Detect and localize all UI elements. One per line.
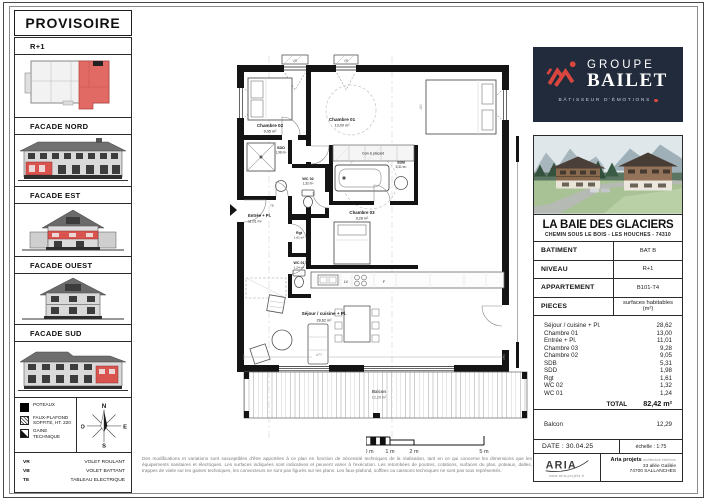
surface-value: 1,24 <box>660 390 672 398</box>
abbrev-code: VB <box>23 467 30 476</box>
legend-label: GAINE TECHNIQUE <box>33 428 74 438</box>
surface-value: 9,05 <box>660 352 672 360</box>
surface-value: 1,61 <box>660 375 672 383</box>
facade-sud-label: FACADE SUD <box>15 325 131 342</box>
brand-name-text: BAILET <box>587 71 668 90</box>
surface-label: Chambre 02 <box>544 352 578 360</box>
status-title: PROVISOIRE <box>14 10 132 36</box>
poteaux-symbol-icon <box>20 403 29 412</box>
surface-value: 5,31 <box>660 360 672 368</box>
entrance-marker-icon <box>230 204 237 216</box>
legend-label: POTEAUX <box>33 402 55 407</box>
legend-item-gaine: GAINE TECHNIQUE <box>20 428 74 438</box>
bed-chambre01-icon <box>426 80 496 134</box>
surface-label: SDB <box>544 360 557 368</box>
aria-logo-icon: ARIA <box>541 457 593 473</box>
wc02-toilet-icon <box>302 190 314 208</box>
key-plan-drawing <box>23 57 123 115</box>
agency-name: Aria projets <box>611 457 642 463</box>
surface-label: Entrée + Pl. <box>544 337 577 345</box>
room-area-chambre01: 13,00 m² <box>335 124 351 128</box>
surface-label: WC 02 <box>544 382 563 390</box>
scale-tick-2: 2 m <box>409 449 419 455</box>
balcony-label: Balcon <box>544 421 563 428</box>
surface-row: Entrée + Pl.11,01 <box>544 337 672 345</box>
abbrev-label: TABLEAU ELECTRIQUE <box>70 476 125 485</box>
compass: N S E O <box>77 398 131 452</box>
info-row-pieces: PIECES surfaces habitables (m²) <box>534 298 682 317</box>
abbrev-label: VOLET ROULANT <box>84 458 125 467</box>
armchair-icon <box>267 295 286 314</box>
facade-sud-unit-highlight <box>96 366 118 383</box>
project-address: CHEMIN SOUS LE BOIS - LES HOUCHES - 7431… <box>545 232 671 238</box>
kitchen-counter <box>311 272 504 288</box>
facade-ouest-label: FACADE OUEST <box>15 257 131 274</box>
room-area-wc02: 1,32 m² <box>303 182 314 186</box>
room-area-sdb: 5,31 m² <box>396 165 407 169</box>
surface-row: WC 021,32 <box>544 382 672 390</box>
surface-label: Séjour / cuisine + Pl. <box>544 322 601 330</box>
abbrev-label: VOLET BATTANT <box>86 467 125 476</box>
info-value: B101-T4 <box>614 279 682 297</box>
floor-plan: Chambre 02 9,05 m² Chambre 01 13,00 m² S… <box>224 50 536 442</box>
scale-tick-1: 1 m <box>385 449 395 455</box>
legend-symbols: POTEAUX FAUX-PLAFOND SOFFITE, HT. 220 GA… <box>15 398 77 452</box>
surface-row: SDB5,31 <box>544 360 672 368</box>
brand-tagline-text: BÂTISSEUR D'ÉMOTIONS <box>559 98 652 103</box>
dim-bed: 160 <box>419 104 423 110</box>
sofa-icon <box>308 324 328 364</box>
facade-nord-label: FACADE NORD <box>15 118 131 135</box>
legend: POTEAUX FAUX-PLAFOND SOFFITE, HT. 220 GA… <box>15 398 131 453</box>
agency-info-cell: Aria projets architecture intérieure 33 … <box>601 454 682 481</box>
legend-item-faux-plafond: FAUX-PLAFOND SOFFITE, HT. 220 <box>20 415 74 425</box>
room-label-rgt: Rgt <box>296 231 303 235</box>
surface-row: Rgt1,61 <box>544 375 672 383</box>
surface-label: Chambre 03 <box>544 345 578 353</box>
room-label-chambre03: Chambre 03 <box>349 210 375 215</box>
room-label-chambre02: Chambre 02 <box>257 123 284 128</box>
info-row-appartement: APPARTEMENT B101-T4 <box>534 279 682 298</box>
room-label-sdd: SDD <box>277 146 285 150</box>
abbrev-te: TE TABLEAU ELECTRIQUE <box>23 476 125 485</box>
legend-label: FAUX-PLAFOND SOFFITE, HT. 220 <box>33 415 74 425</box>
surface-label: Rgt <box>544 375 554 383</box>
room-area-rgt: 1,61 m² <box>294 236 304 240</box>
facade-nord-drawing <box>18 137 128 185</box>
facade-ouest-elevation <box>15 274 131 325</box>
room-area-wc01: 1,24 m² <box>294 266 304 270</box>
project-rendering <box>533 135 683 215</box>
room-area-chambre02: 9,05 m² <box>264 130 278 134</box>
abbrev-code: TE <box>23 476 29 485</box>
room-label-wc02: WC 02 <box>302 177 314 181</box>
surface-row: Séjour / cuisine + Pl.28,62 <box>544 322 672 330</box>
room-label-sejour: Séjour / cuisine + Pl. <box>302 311 347 316</box>
abbreviations: VR VOLET ROULANT VB VOLET BATTANT TE TAB… <box>15 453 131 492</box>
info-row-batiment: BATIMENT BAT B <box>534 242 682 261</box>
compass-s: S <box>102 444 106 449</box>
info-row-niveau: NIVEAU R+1 <box>534 261 682 280</box>
surface-value: 1,32 <box>660 382 672 390</box>
info-label: PIECES <box>534 298 614 316</box>
info-value: surfaces habitables (m²) <box>614 298 682 316</box>
facade-nord-elevation <box>15 135 131 187</box>
compass-e: E <box>123 424 127 430</box>
room-area-balcon: 12,29 m² <box>372 396 387 400</box>
abbrev-vb: VB VOLET BATTANT <box>23 467 125 476</box>
surface-label: SDD <box>544 367 557 375</box>
disclaimer-text: Des modifications et variations sont sus… <box>142 456 532 475</box>
info-label: BATIMENT <box>534 242 614 260</box>
project-title: LA BAIE DES GLACIERS <box>542 219 673 231</box>
floor-plan-svg: Chambre 02 9,05 m² Chambre 01 13,00 m² S… <box>224 50 536 442</box>
room-label-wc01: WC 01 <box>294 261 305 265</box>
te-marker: TE <box>270 204 274 208</box>
room-area-sejour: 28,62 m² <box>317 319 333 323</box>
legend-item-poteaux: POTEAUX <box>20 402 74 412</box>
balcony-row: Balcon 12,29 <box>534 410 682 440</box>
surface-value: 11,01 <box>657 337 672 345</box>
sdb-basin-icon <box>395 177 408 190</box>
facade-est-label: FACADE EST <box>15 187 131 204</box>
balcony-value: 12,29 <box>657 421 672 428</box>
scale-tick-5: 5 m <box>479 449 489 455</box>
info-label: NIVEAU <box>534 261 614 279</box>
armchair-icon <box>250 344 270 364</box>
abbrev-vr: VR VOLET ROULANT <box>23 458 125 467</box>
agency-address-line2: 74700 SALLANCHES <box>601 469 676 475</box>
coffee-table-icon <box>272 330 292 350</box>
room-area-sdd: 1,98 m² <box>276 151 287 155</box>
surface-row: WC 011,24 <box>544 390 672 398</box>
brand-logo-box: GROUPE BAILET BÂTISSEUR D'ÉMOTIONS <box>533 47 683 122</box>
info-value: R+1 <box>614 261 682 279</box>
dimension-line <box>244 351 504 360</box>
compass-rose-icon: N S E O <box>81 401 127 449</box>
agency-website: www.aria-projets.fr <box>549 474 585 478</box>
project-rendering-image <box>534 136 682 214</box>
scale-bar-svg: 0 m 1 m 2 m 5 m <box>366 432 498 458</box>
facade-est-drawing <box>18 206 128 254</box>
kitchen-lv-label: LV <box>344 280 349 284</box>
room-label-balcon: Balcon <box>372 389 386 394</box>
level-label: R+1 <box>15 38 131 55</box>
room-label-placard: Coin & placard <box>362 152 384 156</box>
plan-sheet: PROVISOIRE R+1 FACADE NORD <box>0 0 707 500</box>
room-area-chambre03: 9,28 m² <box>356 217 369 221</box>
surface-row: SDD1,98 <box>544 367 672 375</box>
info-value: BAT B <box>614 242 682 260</box>
surface-label: WC 01 <box>544 390 563 398</box>
title-block: LA BAIE DES GLACIERS CHEMIN SOUS LE BOIS… <box>533 214 683 482</box>
surface-value: 9,28 <box>660 345 672 353</box>
vr-marker: VR <box>344 59 349 63</box>
dim-sejour: 477 <box>316 353 322 357</box>
surface-row: Chambre 039,28 <box>544 345 672 353</box>
facade-sud-drawing <box>18 346 128 394</box>
surface-value: 1,98 <box>660 367 672 375</box>
compass-o: O <box>81 424 85 430</box>
vr-marker: VR <box>293 59 298 63</box>
room-label-chambre01: Chambre 01 <box>329 117 356 122</box>
sidebar: R+1 FACADE NORD <box>14 37 132 493</box>
total-row: TOTAL 82,42 m² <box>544 399 672 408</box>
scale-bar: 0 m 1 m 2 m 5 m <box>366 432 498 458</box>
room-label-entree: Entrée + Pl. <box>248 213 271 218</box>
faux-plafond-symbol-icon <box>20 416 29 425</box>
total-label: TOTAL <box>607 401 628 408</box>
dining-table-icon <box>344 306 370 342</box>
info-label: APPARTEMENT <box>534 279 614 297</box>
key-plan-highlighted-unit <box>79 61 109 109</box>
scale-tick-0: 0 m <box>366 449 374 455</box>
wc01-toilet-icon <box>293 270 305 288</box>
bailet-logo-icon <box>543 57 579 93</box>
abbrev-code: VR <box>23 458 30 467</box>
compass-n: N <box>102 403 107 410</box>
surface-value: 13,00 <box>657 330 672 338</box>
bed-chambre02-icon <box>248 78 292 120</box>
room-label-sdb: SDB <box>397 161 405 165</box>
surface-row: Chambre 029,05 <box>544 352 672 360</box>
key-plan <box>15 55 131 118</box>
facade-est-elevation <box>15 204 131 257</box>
room-area-entree: 11,01 m² <box>248 220 262 224</box>
brand-tagline: BÂTISSEUR D'ÉMOTIONS <box>533 98 683 103</box>
agency-row: ARIA www.aria-projets.fr Aria projets ar… <box>534 454 682 481</box>
agency-descriptor: architecture intérieure <box>643 458 676 462</box>
date-value: DATE : 30.04.25 <box>534 440 619 453</box>
bed-chambre03-icon <box>334 222 370 264</box>
total-value: 82,42 m² <box>643 399 672 408</box>
surfaces-list: Séjour / cuisine + Pl.28,62 Chambre 0113… <box>534 316 682 410</box>
scale-value: échelle : 1:75 <box>619 440 682 453</box>
gaine-symbol-icon <box>20 429 29 438</box>
agency-logo-cell: ARIA www.aria-projets.fr <box>534 454 601 481</box>
project-header: LA BAIE DES GLACIERS CHEMIN SOUS LE BOIS… <box>534 215 682 242</box>
surface-value: 28,62 <box>657 322 672 330</box>
facade-ouest-drawing <box>18 275 128 323</box>
shower-icon <box>247 143 275 171</box>
facade-sud-elevation <box>15 342 131 398</box>
aria-logo-text: ARIA <box>546 460 577 472</box>
bathtub-icon <box>335 165 389 191</box>
date-row: DATE : 30.04.25 échelle : 1:75 <box>534 440 682 454</box>
surface-label: Chambre 01 <box>544 330 578 338</box>
tagline-dot-icon <box>654 99 658 103</box>
surface-row: Chambre 0113,00 <box>544 330 672 338</box>
